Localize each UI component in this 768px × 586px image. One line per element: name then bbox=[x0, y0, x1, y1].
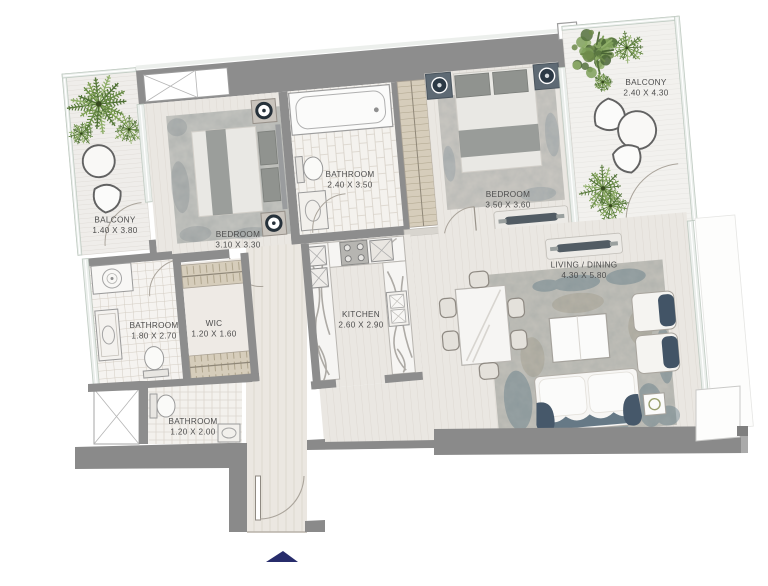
svg-text:1.20 X 1.60: 1.20 X 1.60 bbox=[191, 330, 236, 339]
svg-text:1.20 X 2.00: 1.20 X 2.00 bbox=[170, 428, 215, 437]
svg-text:BATHROOM: BATHROOM bbox=[325, 170, 374, 179]
svg-text:2.40 X 3.50: 2.40 X 3.50 bbox=[327, 181, 372, 190]
svg-text:4.30 X 5.80: 4.30 X 5.80 bbox=[561, 271, 606, 280]
svg-text:BATHROOM: BATHROOM bbox=[129, 321, 178, 330]
svg-text:1.80 X 2.70: 1.80 X 2.70 bbox=[131, 332, 176, 341]
svg-text:1.40 X 3.80: 1.40 X 3.80 bbox=[92, 226, 137, 235]
svg-text:BATHROOM: BATHROOM bbox=[168, 417, 217, 426]
svg-text:BEDROOM: BEDROOM bbox=[216, 230, 260, 239]
svg-text:3.50 X 3.60: 3.50 X 3.60 bbox=[485, 201, 530, 210]
svg-text:3.10 X 3.30: 3.10 X 3.30 bbox=[215, 241, 260, 250]
svg-text:BEDROOM: BEDROOM bbox=[486, 190, 530, 199]
svg-text:BALCONY: BALCONY bbox=[625, 78, 666, 87]
svg-text:2.40 X 4.30: 2.40 X 4.30 bbox=[623, 89, 668, 98]
svg-text:2.60 X 2.90: 2.60 X 2.90 bbox=[338, 321, 383, 330]
svg-text:BALCONY: BALCONY bbox=[94, 216, 135, 225]
svg-text:WIC: WIC bbox=[206, 319, 223, 328]
svg-text:LIVING / DINING: LIVING / DINING bbox=[551, 261, 618, 270]
svg-text:KITCHEN: KITCHEN bbox=[342, 310, 380, 319]
